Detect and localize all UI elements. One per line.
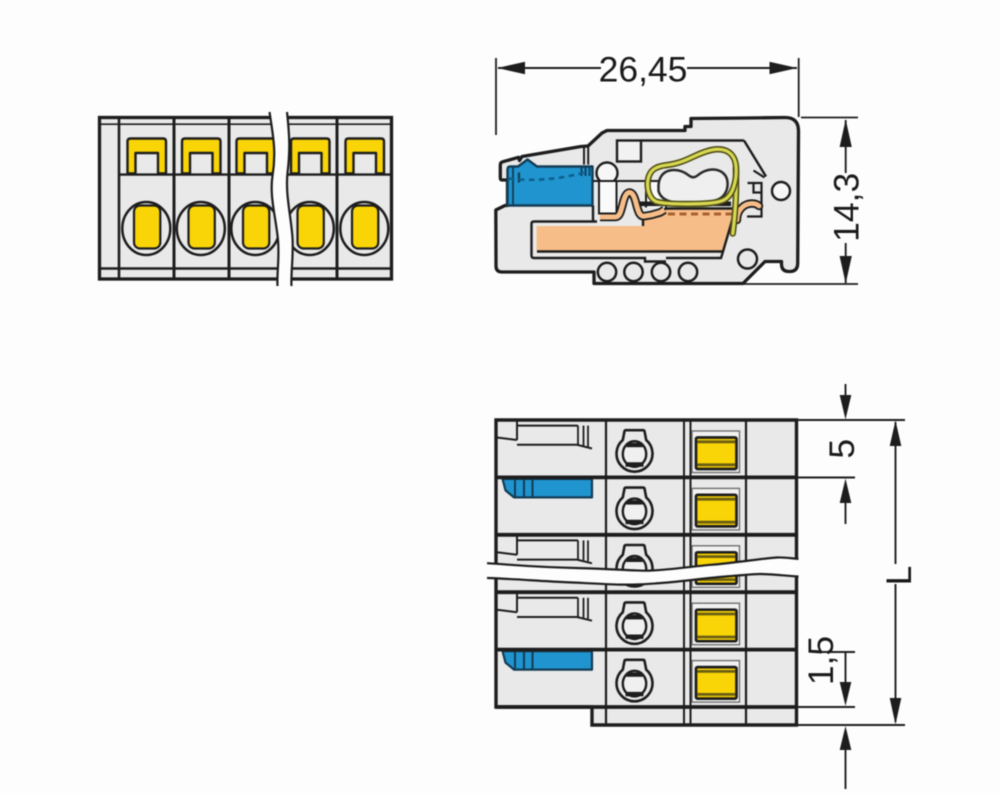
svg-text:L: L: [879, 566, 919, 586]
svg-text:26,45: 26,45: [599, 50, 688, 90]
svg-text:14,3: 14,3: [826, 173, 866, 242]
svg-text:1,5: 1,5: [801, 636, 841, 685]
svg-text:5: 5: [822, 439, 862, 459]
